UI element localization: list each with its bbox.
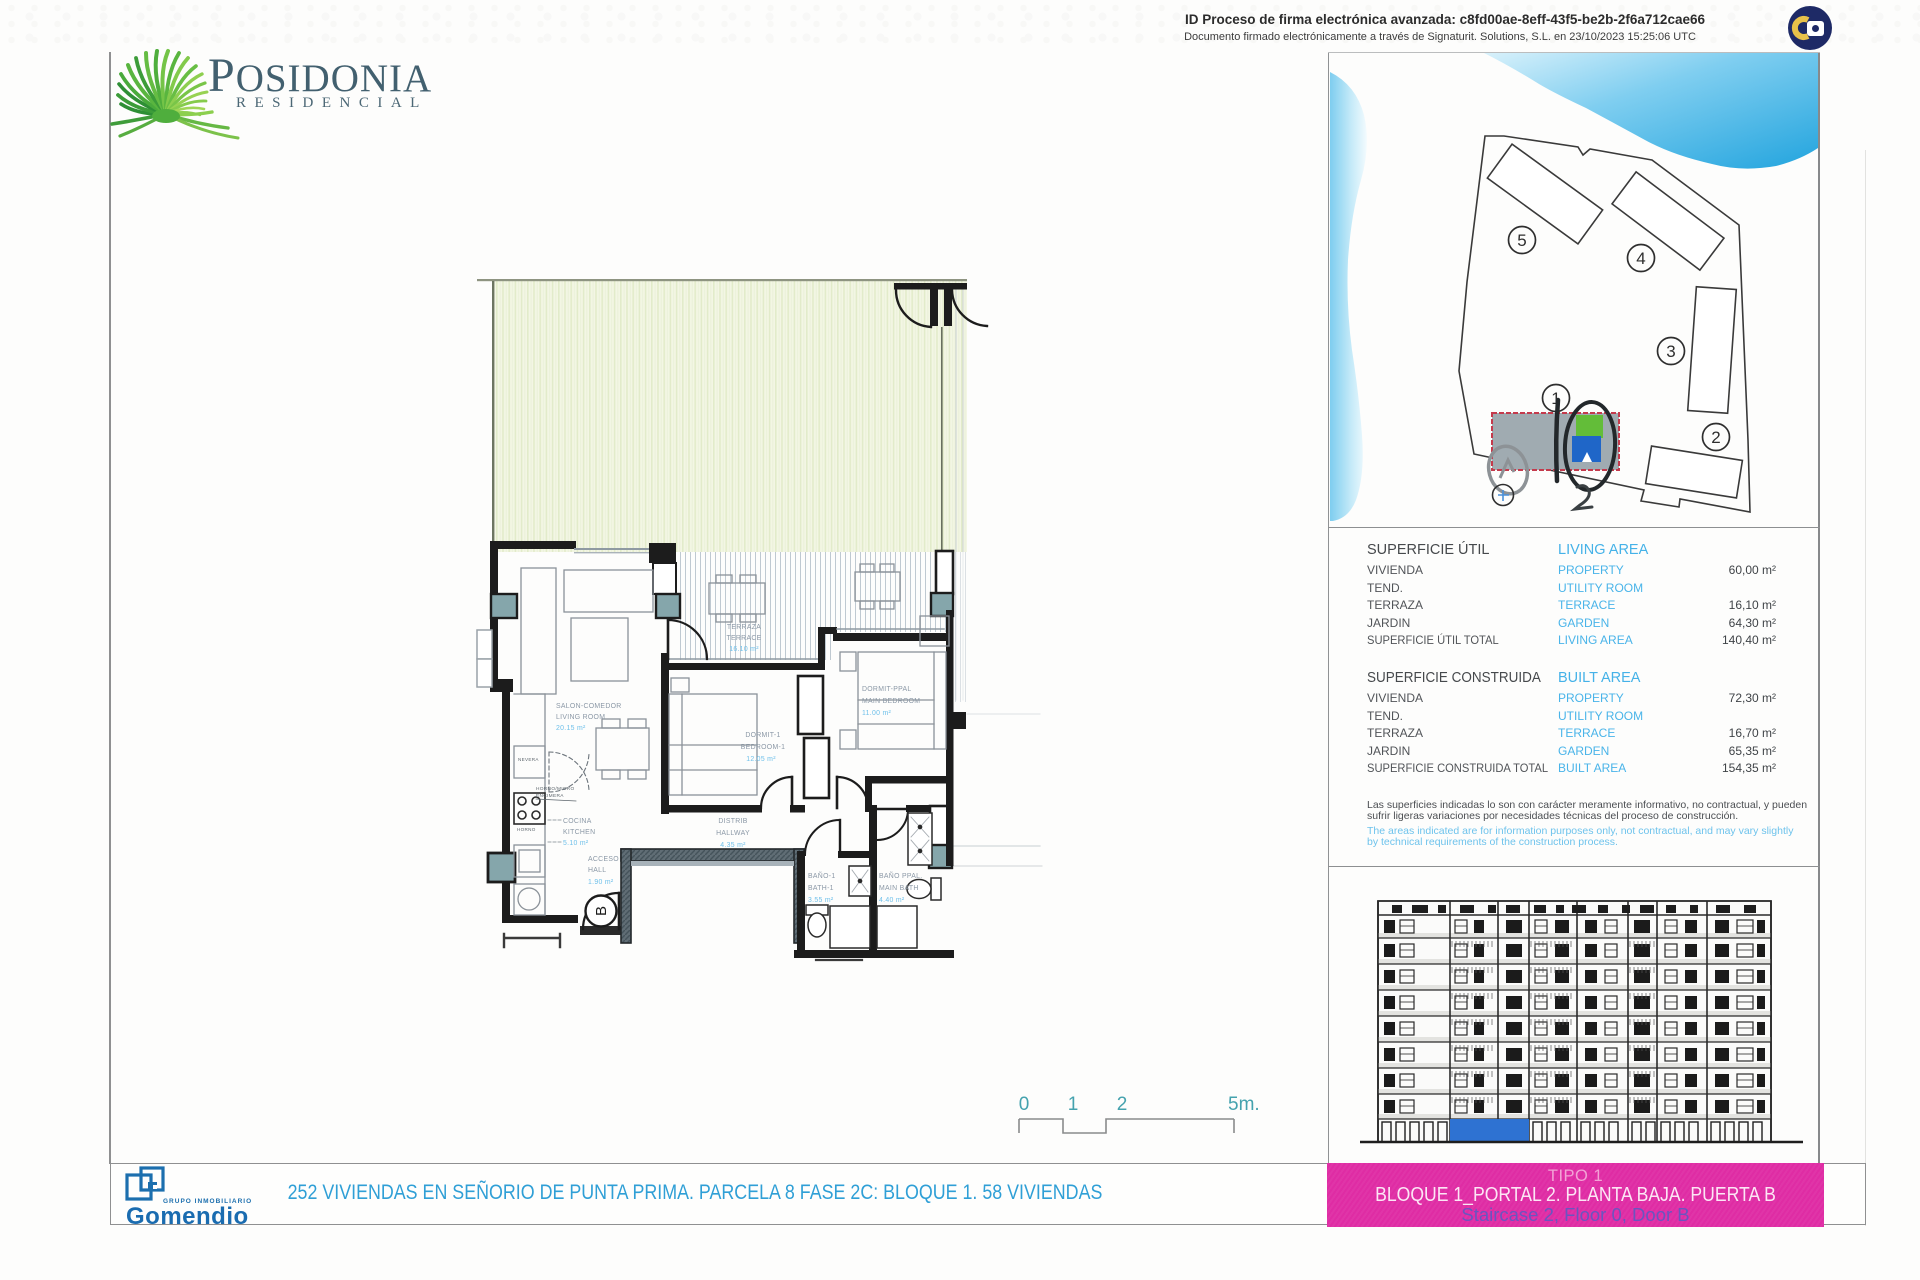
svg-text:BEDROOM-1: BEDROOM-1 <box>741 744 785 751</box>
svg-text:11.00 m²: 11.00 m² <box>862 710 891 717</box>
svg-text:1.90 m²: 1.90 m² <box>588 879 614 886</box>
svg-text:HORNO: HORNO <box>517 827 536 832</box>
svg-text:1: 1 <box>1068 1094 1079 1115</box>
svg-text:2: 2 <box>1711 428 1720 447</box>
svg-text:3: 3 <box>1666 342 1675 361</box>
svg-text:4.35 m²: 4.35 m² <box>720 842 746 849</box>
svg-text:NEVERA: NEVERA <box>518 757 539 762</box>
svg-text:BATH-1: BATH-1 <box>808 885 834 892</box>
svg-text:0: 0 <box>1019 1094 1030 1115</box>
svg-text:DORMIT-1: DORMIT-1 <box>745 732 780 739</box>
svg-text:TERRAZA: TERRAZA <box>727 624 761 631</box>
svg-text:4.40 m²: 4.40 m² <box>879 897 905 904</box>
svg-text:3.55 m²: 3.55 m² <box>808 897 834 904</box>
svg-text:ENCIMERA: ENCIMERA <box>536 793 564 799</box>
svg-text:4: 4 <box>1636 249 1645 268</box>
svg-text:DISTRIB: DISTRIB <box>718 818 747 825</box>
svg-text:LIVING ROOM: LIVING ROOM <box>556 714 605 721</box>
svg-text:5m.: 5m. <box>1228 1094 1260 1115</box>
svg-text:COCINA: COCINA <box>563 818 592 825</box>
svg-text:5: 5 <box>1517 231 1526 250</box>
svg-text:ACCESO: ACCESO <box>588 856 619 863</box>
svg-text:MAIN BATH: MAIN BATH <box>879 885 919 892</box>
svg-text:5.10 m²: 5.10 m² <box>563 840 589 847</box>
svg-text:SALON-COMEDOR: SALON-COMEDOR <box>556 703 622 710</box>
svg-text:DORMIT-PPAL: DORMIT-PPAL <box>862 686 912 693</box>
svg-text:BAÑO PPAL.: BAÑO PPAL. <box>879 871 922 880</box>
svg-text:12.05 m²: 12.05 m² <box>746 756 776 763</box>
svg-text:HORNO/MICRO: HORNO/MICRO <box>536 786 574 792</box>
svg-text:BAÑO-1: BAÑO-1 <box>808 871 835 880</box>
svg-text:TERRACE: TERRACE <box>726 635 761 642</box>
svg-text:2: 2 <box>1117 1094 1128 1115</box>
svg-text:KITCHEN: KITCHEN <box>563 829 595 836</box>
svg-text:16.10 m²: 16.10 m² <box>729 646 759 653</box>
svg-text:HALLWAY: HALLWAY <box>716 830 750 837</box>
svg-text:MAIN BEDROOM: MAIN BEDROOM <box>862 698 920 705</box>
svg-text:HALL: HALL <box>588 867 606 874</box>
svg-text:B: B <box>593 906 610 916</box>
svg-text:20.15 m²: 20.15 m² <box>556 725 586 732</box>
